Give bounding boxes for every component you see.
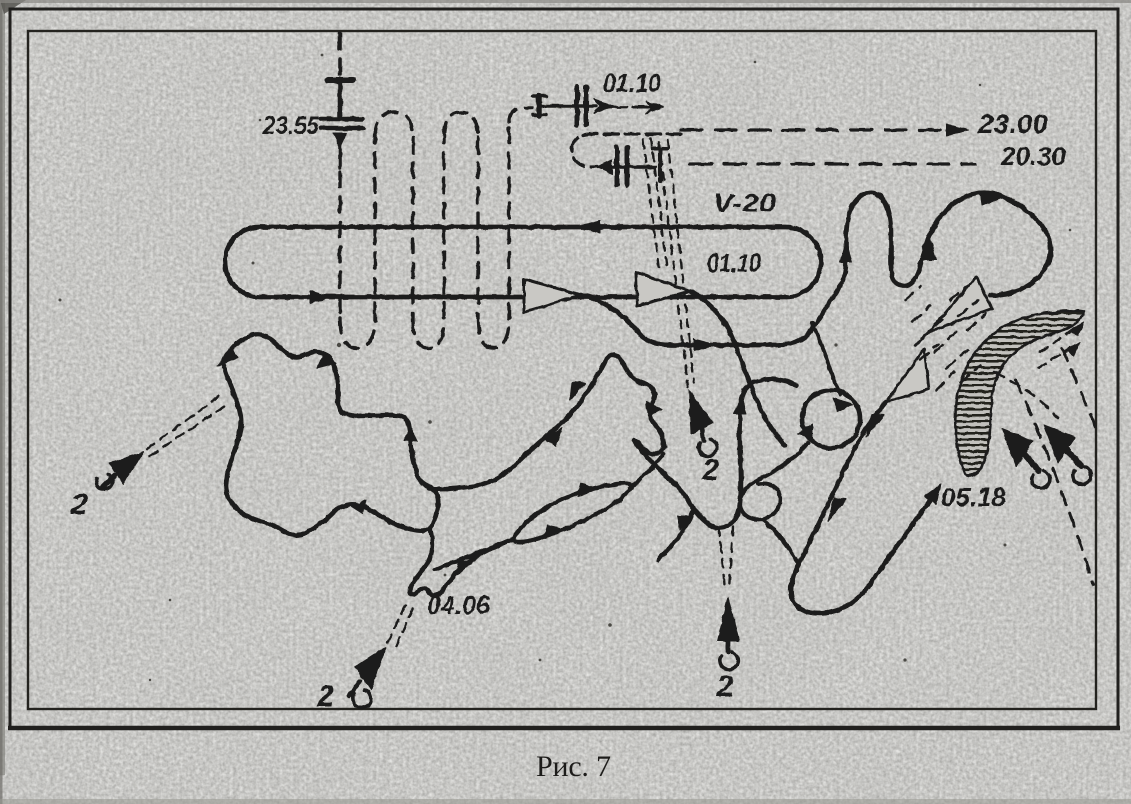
svg-text:01.10: 01.10 <box>603 68 661 98</box>
svg-text:20.30: 20.30 <box>1000 141 1067 171</box>
svg-text:2: 2 <box>701 454 719 487</box>
svg-text:05.18: 05.18 <box>941 482 1007 512</box>
svg-text:V-20: V-20 <box>713 188 777 218</box>
svg-text:2: 2 <box>316 680 334 713</box>
svg-text:2: 2 <box>70 488 88 521</box>
svg-text:2: 2 <box>716 670 734 703</box>
svg-text:23.00: 23.00 <box>977 109 1049 139</box>
svg-text:Рис. 7: Рис. 7 <box>536 750 611 783</box>
svg-text:23.55: 23.55 <box>262 112 320 140</box>
svg-text:01.10: 01.10 <box>707 248 761 278</box>
